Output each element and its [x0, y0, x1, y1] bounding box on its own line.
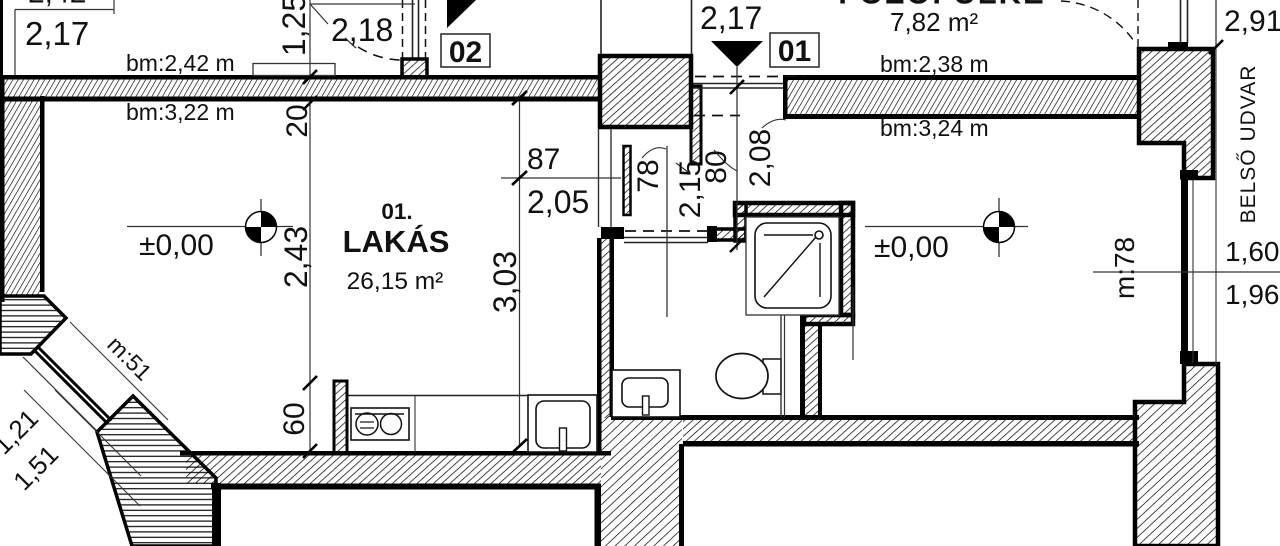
svg-text:2,43: 2,43 — [278, 226, 314, 288]
svg-text:±0,00: ±0,00 — [139, 229, 214, 262]
svg-text:2,17: 2,17 — [700, 0, 762, 36]
svg-text:78: 78 — [632, 159, 665, 192]
svg-text:7,82 m²: 7,82 m² — [890, 7, 978, 37]
svg-text:01.: 01. — [381, 199, 412, 224]
svg-text:bm:3,24 m: bm:3,24 m — [880, 115, 989, 141]
svg-text:BELSŐ UDVAR: BELSŐ UDVAR — [1237, 65, 1260, 224]
svg-text:1,96: 1,96 — [1225, 279, 1280, 310]
svg-text:bm:2,38 m: bm:2,38 m — [880, 51, 989, 77]
svg-text:02: 02 — [449, 36, 482, 69]
svg-text:2,18: 2,18 — [331, 12, 393, 48]
svg-text:2,91: 2,91 — [1224, 5, 1280, 38]
svg-text:2,05: 2,05 — [527, 184, 589, 220]
svg-text:1,60: 1,60 — [1225, 236, 1280, 267]
svg-text:LAKÁS: LAKÁS — [343, 224, 450, 259]
svg-text:m:78: m:78 — [1109, 237, 1140, 299]
svg-text:3,03: 3,03 — [487, 251, 523, 313]
svg-text:bm:2,42 m: bm:2,42 m — [126, 50, 235, 76]
svg-text:26,15 m²: 26,15 m² — [347, 268, 444, 295]
svg-text:2,42: 2,42 — [28, 0, 86, 10]
svg-text:20: 20 — [281, 104, 314, 137]
svg-text:2,08: 2,08 — [744, 129, 777, 187]
svg-text:2,17: 2,17 — [25, 15, 89, 52]
svg-text:01: 01 — [778, 35, 811, 68]
svg-text:1,25: 1,25 — [276, 0, 312, 56]
svg-text:80: 80 — [700, 150, 733, 183]
svg-text:bm:3,22 m: bm:3,22 m — [126, 99, 235, 125]
svg-text:87: 87 — [527, 143, 560, 176]
svg-text:±0,00: ±0,00 — [874, 231, 949, 264]
svg-text:60: 60 — [278, 402, 311, 435]
